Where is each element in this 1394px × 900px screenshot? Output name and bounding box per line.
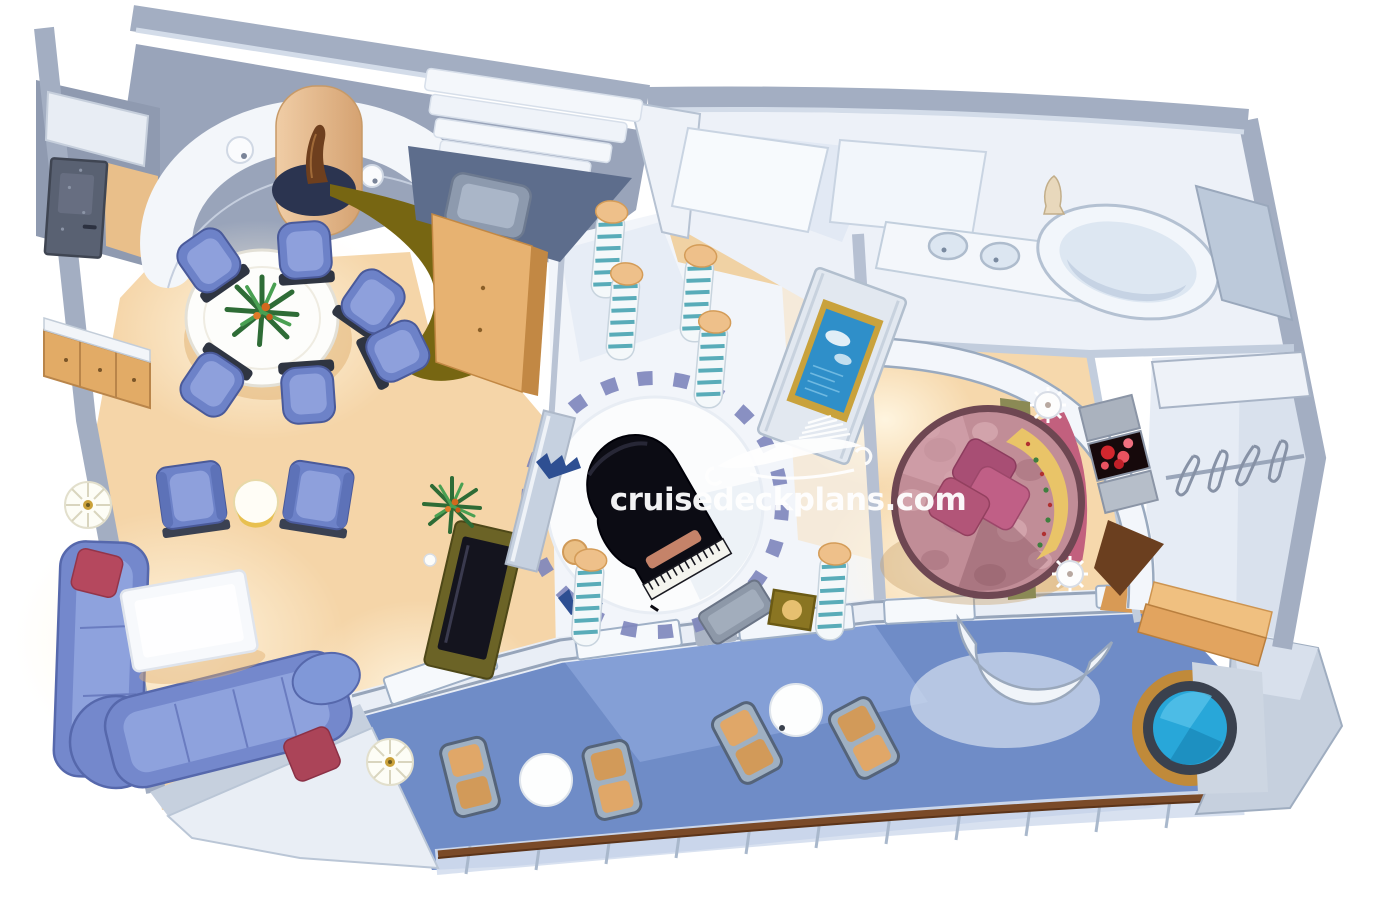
entry-door — [45, 158, 108, 258]
floor-lamp — [65, 482, 111, 528]
nightstand — [1030, 387, 1066, 423]
armchair — [154, 460, 231, 539]
gold-planter — [769, 590, 816, 630]
balcony-pale-area — [910, 652, 1100, 748]
minibar-cabinet — [432, 214, 532, 392]
sink-drain — [994, 258, 999, 263]
balcony-round-table — [520, 754, 572, 806]
wall-sconce — [361, 165, 383, 187]
suite-floorplan-rendering: cruisedeckplans.com — [0, 0, 1394, 900]
watermark-text: cruisedeckplans.com — [610, 482, 967, 518]
wall-sconce — [227, 137, 253, 163]
nightstand — [1052, 556, 1088, 592]
dining-chair — [275, 220, 335, 286]
sconce-dot — [241, 153, 247, 159]
decor-dot — [424, 554, 436, 566]
sink — [981, 243, 1019, 269]
sink-drain — [942, 248, 947, 253]
table-dot — [779, 725, 785, 731]
sink — [929, 233, 967, 259]
bathroom-divider-slab — [830, 140, 986, 236]
balcony-round-table — [770, 684, 822, 736]
floor-lamp — [367, 739, 413, 785]
sconce-dot — [372, 178, 377, 183]
dining-chair — [278, 359, 338, 425]
